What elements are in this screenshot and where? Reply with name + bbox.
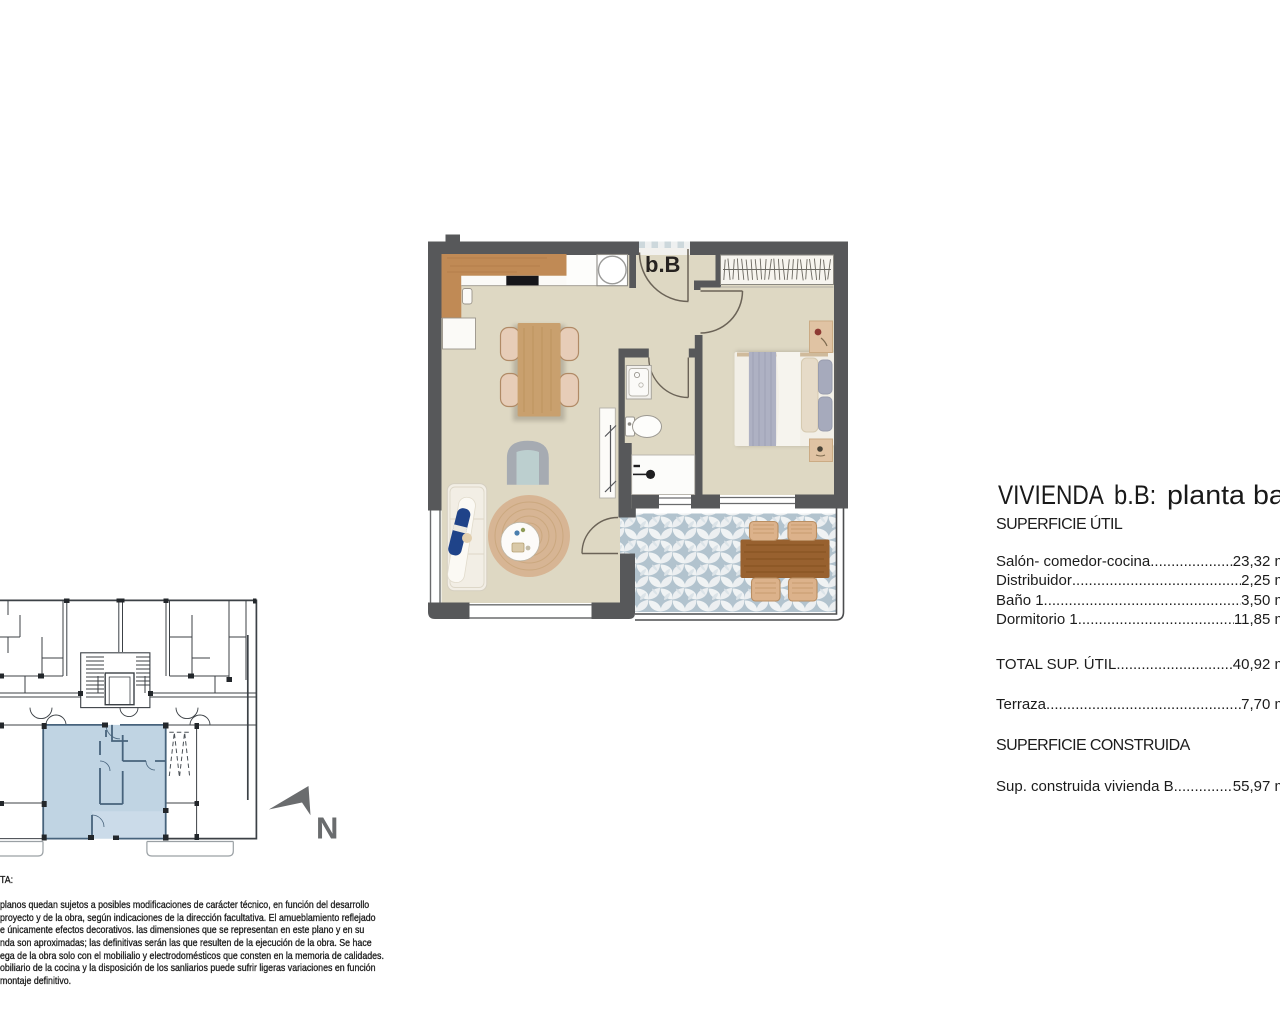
svg-text:b.B: b.B xyxy=(645,252,680,277)
